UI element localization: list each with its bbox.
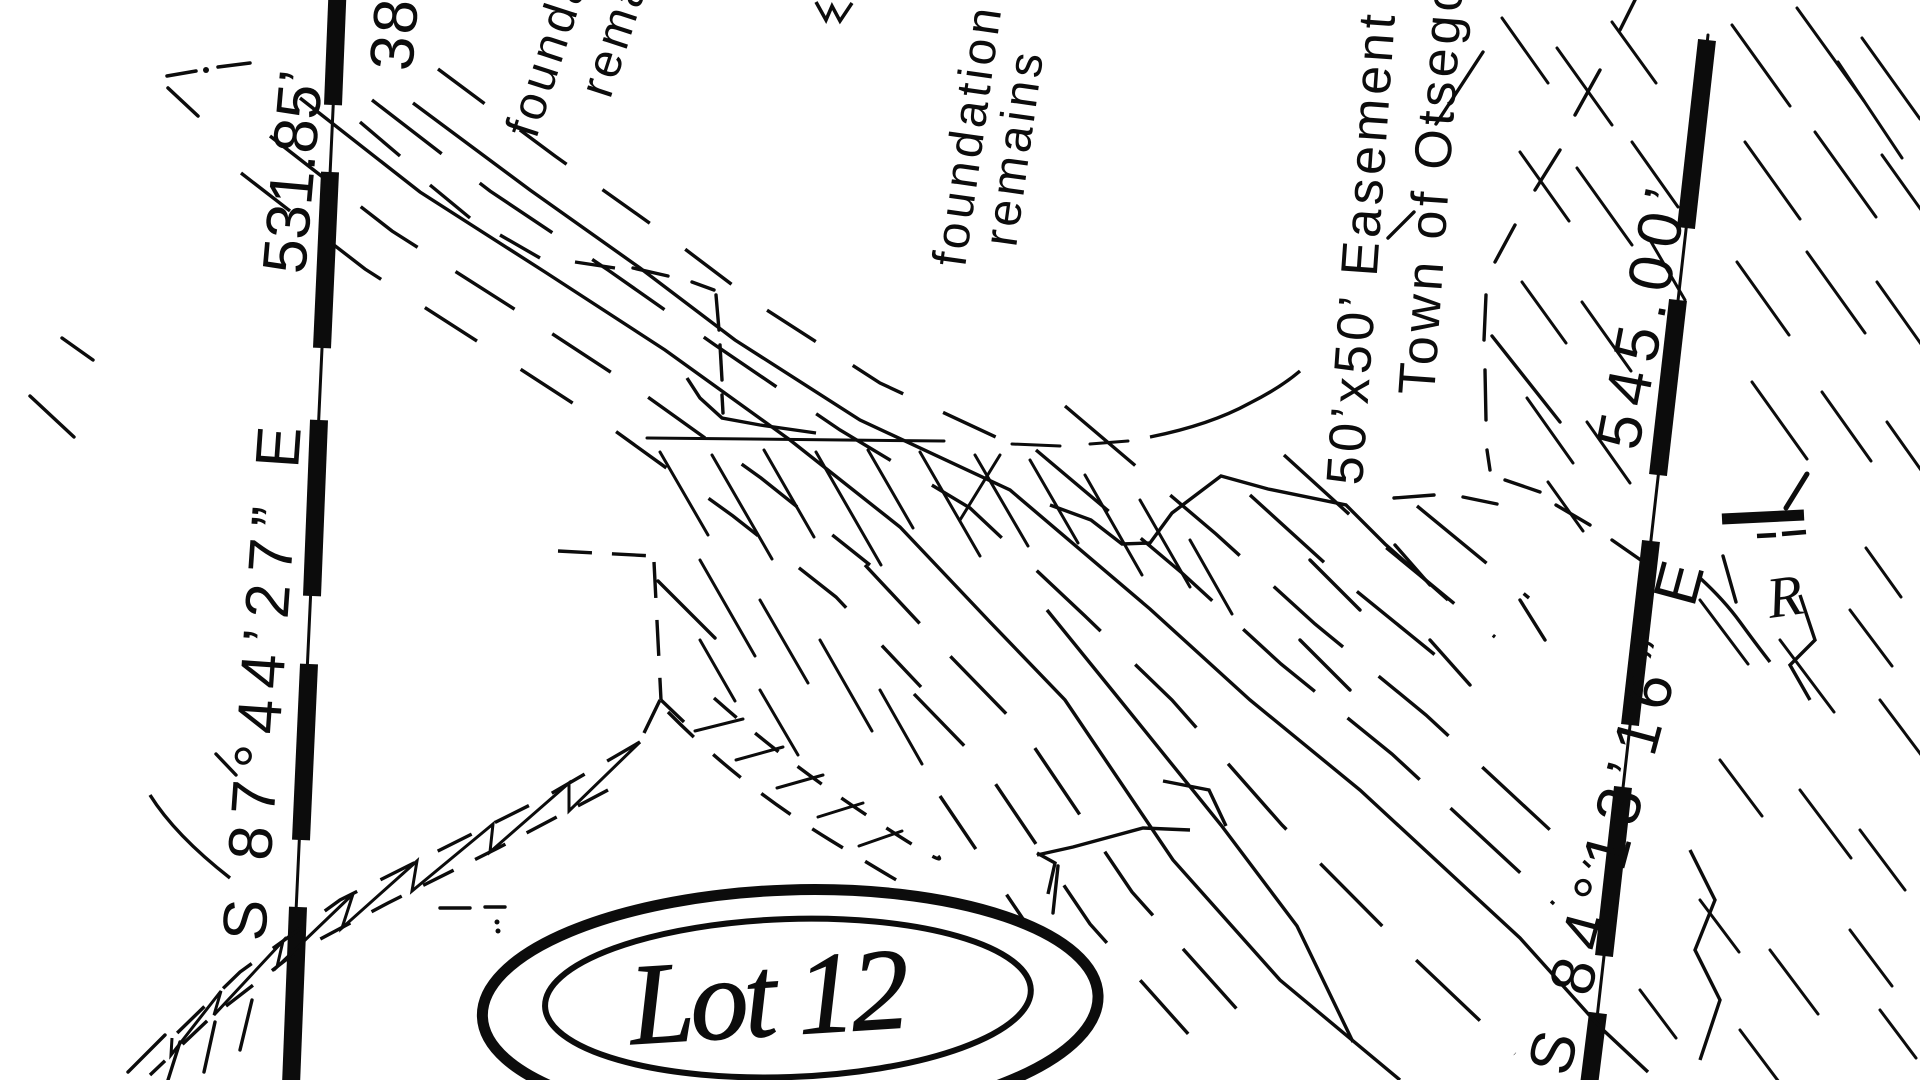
- svg-text:38: 38: [357, 0, 432, 73]
- svg-text:Lot 12: Lot 12: [624, 925, 911, 1070]
